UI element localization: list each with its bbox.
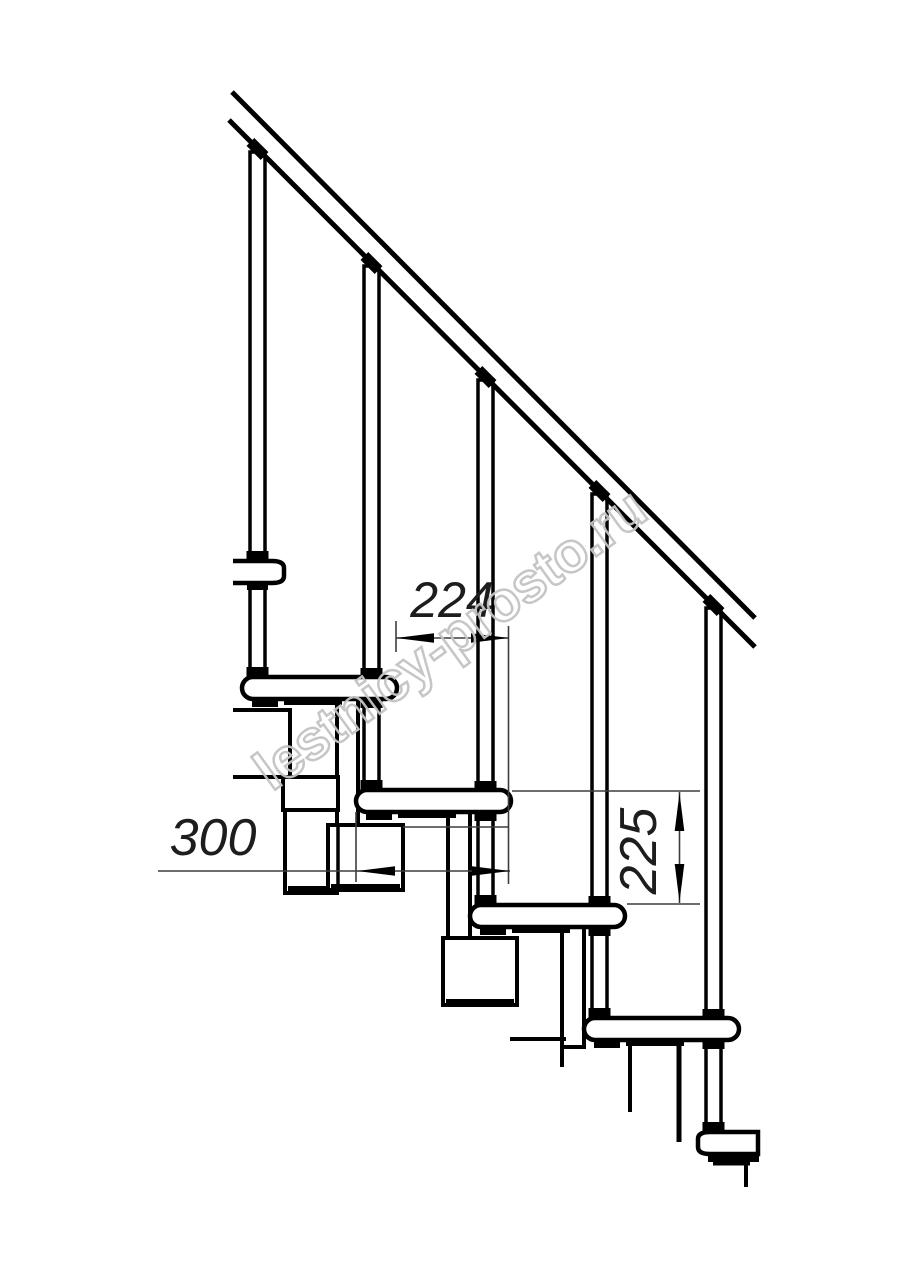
baluster-1-upper-segment bbox=[250, 152, 265, 564]
module-band-2 bbox=[448, 812, 470, 942]
break-line-under-box3 bbox=[510, 1039, 566, 1067]
tread-0-cut bbox=[233, 561, 284, 583]
module-box-2-plate bbox=[331, 884, 400, 890]
tread-4 bbox=[584, 1018, 739, 1040]
dim-label-225: 225 bbox=[610, 807, 668, 896]
arrow-225-down bbox=[675, 864, 685, 902]
tread-3-strip bbox=[512, 927, 570, 933]
tread-2 bbox=[356, 790, 511, 812]
tread-4-strip bbox=[626, 1040, 684, 1046]
tread-3-foot bbox=[480, 927, 506, 935]
module-box-3 bbox=[443, 938, 517, 1005]
collar bbox=[475, 781, 497, 790]
collar bbox=[361, 780, 383, 790]
baluster-5 bbox=[706, 608, 721, 1134]
collar bbox=[589, 896, 611, 905]
collar bbox=[247, 551, 269, 561]
arrow-225-up bbox=[675, 793, 685, 831]
baluster-3-lower-segment bbox=[478, 810, 493, 907]
collar bbox=[703, 1009, 725, 1018]
collar bbox=[247, 667, 269, 677]
dim-label-300: 300 bbox=[170, 809, 257, 867]
module-box-3-plate bbox=[446, 999, 514, 1005]
tread-5-cut bbox=[698, 1132, 758, 1154]
baluster-4-lower-segment bbox=[592, 925, 607, 1020]
baluster-1-lower-segment bbox=[250, 581, 265, 679]
collar bbox=[703, 1122, 725, 1132]
collar bbox=[703, 1040, 725, 1049]
baluster-2-upper-segment bbox=[364, 266, 379, 679]
tread-5-foot bbox=[708, 1154, 734, 1162]
break-line-under-tread5 bbox=[713, 1164, 750, 1188]
tread-2-foot bbox=[366, 812, 392, 820]
baluster-1 bbox=[250, 152, 265, 679]
tread-0-foot-below bbox=[247, 583, 268, 590]
tread-5-strip bbox=[733, 1153, 759, 1162]
collar bbox=[475, 895, 497, 905]
tread-2-strip bbox=[398, 812, 456, 818]
collar bbox=[475, 812, 497, 821]
drawing-canvas: 224 300 225 lestnicy-prosto.ru bbox=[0, 0, 914, 1280]
collar bbox=[589, 1008, 611, 1018]
tread-1-foot bbox=[252, 699, 278, 707]
baluster-4 bbox=[592, 494, 607, 1020]
module-band-3 bbox=[562, 925, 584, 1047]
tread-4-foot bbox=[594, 1040, 620, 1048]
baluster-5-upper-segment bbox=[706, 608, 721, 1020]
collar bbox=[589, 927, 611, 936]
baluster-5-lower-segment bbox=[706, 1038, 721, 1134]
tread-3 bbox=[470, 905, 625, 927]
